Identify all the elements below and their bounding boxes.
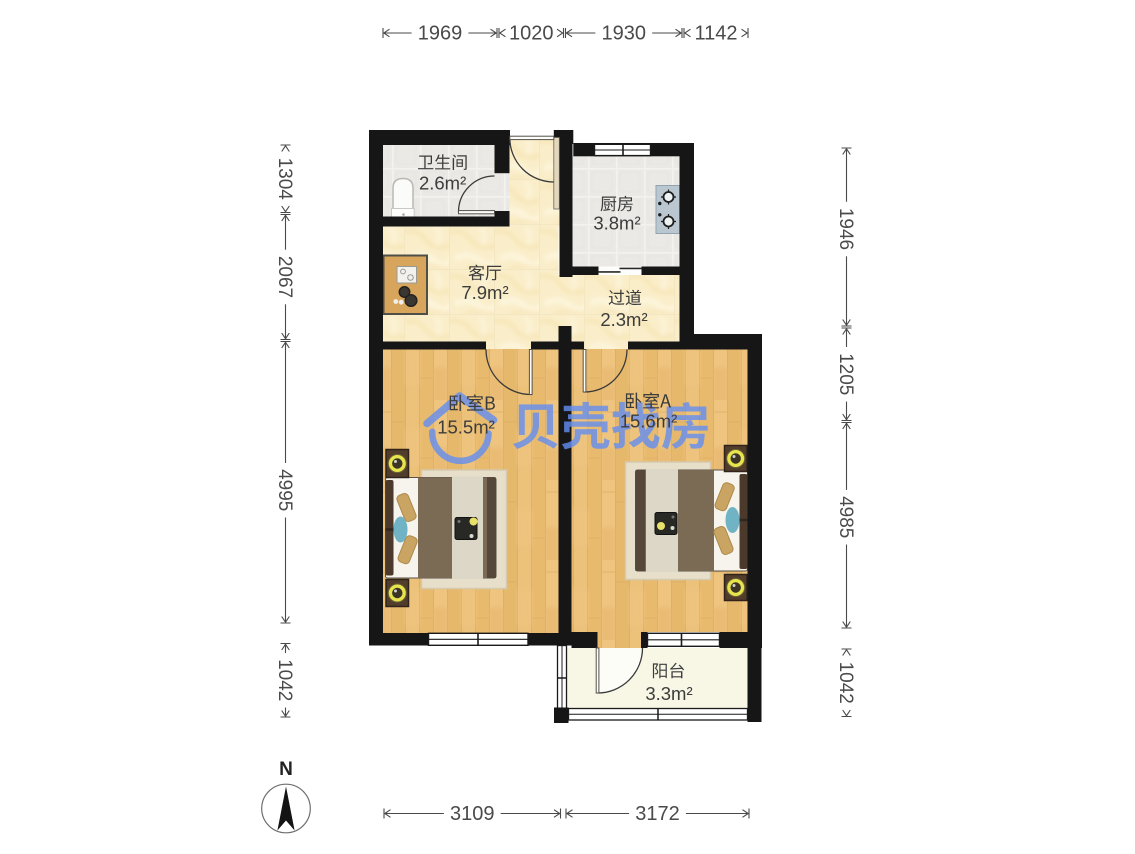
svg-text:2.3m²: 2.3m² [600,309,647,330]
svg-text:1042: 1042 [835,662,856,704]
svg-text:1020: 1020 [509,23,554,45]
svg-text:4985: 4985 [835,496,856,538]
svg-text:1930: 1930 [602,23,647,45]
svg-text:1205: 1205 [835,353,856,395]
svg-text:1142: 1142 [694,23,737,45]
svg-text:7.9m²: 7.9m² [461,282,508,303]
svg-text:1042: 1042 [274,659,295,701]
svg-text:3.8m²: 3.8m² [593,213,640,234]
svg-text:15.6m²: 15.6m² [620,411,678,432]
svg-text:1946: 1946 [835,208,856,250]
svg-text:N: N [279,759,293,780]
svg-text:3172: 3172 [635,803,680,825]
svg-text:2.6m²: 2.6m² [419,173,466,194]
svg-text:3.3m²: 3.3m² [645,683,692,704]
svg-text:3109: 3109 [450,803,495,825]
svg-text:15.5m²: 15.5m² [437,417,495,438]
svg-text:1969: 1969 [418,23,463,45]
svg-text:1304: 1304 [274,158,295,201]
svg-text:2067: 2067 [274,256,295,298]
svg-text:4995: 4995 [274,469,295,511]
